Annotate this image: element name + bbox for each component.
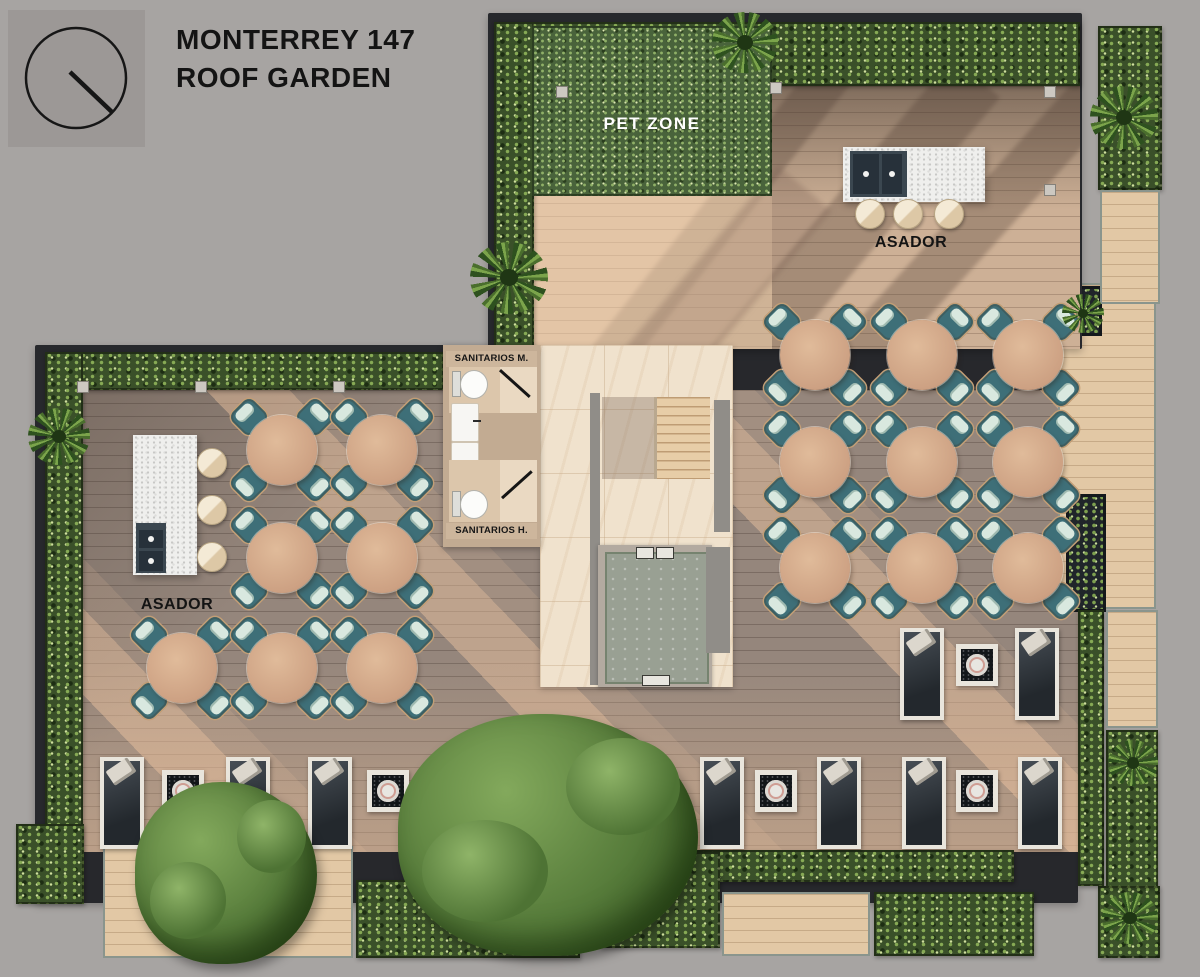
sun-lounger — [700, 757, 744, 849]
chair-cushion — [308, 694, 331, 717]
sun-lounger — [1018, 757, 1062, 849]
dining-table — [347, 415, 417, 485]
sun-lounger — [308, 757, 352, 849]
chair-cushion — [408, 476, 431, 499]
chair-cushion — [948, 381, 971, 404]
fence-post — [770, 82, 782, 94]
bar-stool — [197, 542, 227, 572]
chair-cushion — [979, 594, 1002, 617]
dining-table — [887, 533, 957, 603]
side-table — [956, 770, 998, 812]
chair-cushion — [948, 413, 971, 436]
chair-cushion — [841, 488, 864, 511]
bar-stool — [934, 199, 964, 229]
chair-cushion — [333, 619, 356, 642]
chair-cushion — [1054, 594, 1077, 617]
dining-table — [993, 533, 1063, 603]
palm-plant — [1108, 740, 1158, 786]
fence-post — [556, 86, 568, 98]
dining-table — [993, 320, 1063, 390]
chair-cushion — [1054, 488, 1077, 511]
chair-cushion — [948, 594, 971, 617]
dining-table — [347, 523, 417, 593]
chair-cushion — [766, 488, 789, 511]
palm-plant — [28, 408, 90, 465]
chair-cushion — [208, 694, 231, 717]
bar-stool — [855, 199, 885, 229]
dining-table — [147, 633, 217, 703]
dining-table — [780, 427, 850, 497]
chair-cushion — [979, 519, 1002, 542]
dining-table — [993, 427, 1063, 497]
asador-left-label: ASADOR — [117, 596, 237, 614]
palm-plant — [712, 12, 778, 73]
chair-cushion — [333, 584, 356, 607]
sun-lounger — [817, 757, 861, 849]
fence-post — [195, 381, 207, 393]
bar-stool — [197, 495, 227, 525]
chair-cushion — [873, 488, 896, 511]
chair-cushion — [308, 509, 331, 532]
chair-cushion — [333, 694, 356, 717]
chair-cushion — [1054, 413, 1077, 436]
chair-cushion — [333, 476, 356, 499]
chair-cushion — [208, 619, 231, 642]
palm-plant — [1102, 892, 1158, 944]
chair-cushion — [333, 509, 356, 532]
serving-plate — [966, 654, 988, 676]
chair-cushion — [979, 413, 1002, 436]
sun-lounger — [900, 628, 944, 720]
bar-stool — [893, 199, 923, 229]
chair-cushion — [873, 413, 896, 436]
chair-cushion — [1054, 381, 1077, 404]
chair-cushion — [841, 519, 864, 542]
side-table — [755, 770, 797, 812]
chair-cushion — [766, 519, 789, 542]
chair-cushion — [948, 488, 971, 511]
dining-table — [887, 427, 957, 497]
chair-cushion — [766, 381, 789, 404]
palm-plant — [1090, 86, 1158, 149]
chair-cushion — [1054, 519, 1077, 542]
fence-post — [77, 381, 89, 393]
chair-cushion — [979, 488, 1002, 511]
dining-table — [247, 523, 317, 593]
chair-cushion — [233, 509, 256, 532]
dining-table — [247, 415, 317, 485]
chair-cushion — [841, 594, 864, 617]
chair-cushion — [948, 519, 971, 542]
chair-cushion — [408, 584, 431, 607]
fence-post — [1044, 86, 1056, 98]
chair-cushion — [308, 619, 331, 642]
palm-plant — [470, 242, 548, 314]
chair-cushion — [841, 306, 864, 329]
chair-cushion — [308, 584, 331, 607]
chair-cushion — [979, 381, 1002, 404]
fence-post — [333, 381, 345, 393]
serving-plate — [966, 780, 988, 802]
chair-cushion — [766, 594, 789, 617]
chair-cushion — [766, 413, 789, 436]
serving-plate — [377, 780, 399, 802]
roof-garden-floor-plan: MONTERREY 147 ROOF GARDEN PET ZONE — [0, 0, 1200, 977]
dining-table — [347, 633, 417, 703]
chair-cushion — [133, 694, 156, 717]
fence-post — [1044, 184, 1056, 196]
dining-table — [247, 633, 317, 703]
chair-cushion — [133, 619, 156, 642]
dining-table — [780, 320, 850, 390]
chair-cushion — [873, 594, 896, 617]
asador-upper-label: ASADOR — [851, 234, 971, 252]
chair-cushion — [979, 306, 1002, 329]
chair-cushion — [841, 413, 864, 436]
sun-lounger — [902, 757, 946, 849]
chair-cushion — [408, 619, 431, 642]
palm-plant — [1062, 294, 1104, 333]
bar-stool — [197, 448, 227, 478]
chair-cushion — [408, 401, 431, 424]
sun-lounger — [100, 757, 144, 849]
chair-cushion — [233, 401, 256, 424]
chair-cushion — [233, 476, 256, 499]
chair-cushion — [948, 306, 971, 329]
chair-cushion — [873, 519, 896, 542]
sun-lounger — [1015, 628, 1059, 720]
dining-table — [780, 533, 850, 603]
side-table — [956, 644, 998, 686]
chair-cushion — [873, 381, 896, 404]
chair-cushion — [766, 306, 789, 329]
chair-cushion — [308, 476, 331, 499]
chair-cushion — [333, 401, 356, 424]
serving-plate — [765, 780, 787, 802]
chair-cushion — [233, 694, 256, 717]
chair-cushion — [873, 306, 896, 329]
chair-cushion — [841, 381, 864, 404]
chair-cushion — [408, 694, 431, 717]
furniture-layer — [0, 0, 1200, 977]
dining-table — [887, 320, 957, 390]
tree — [135, 782, 317, 964]
tree — [398, 714, 698, 956]
chair-cushion — [408, 509, 431, 532]
chair-cushion — [308, 401, 331, 424]
chair-cushion — [233, 619, 256, 642]
